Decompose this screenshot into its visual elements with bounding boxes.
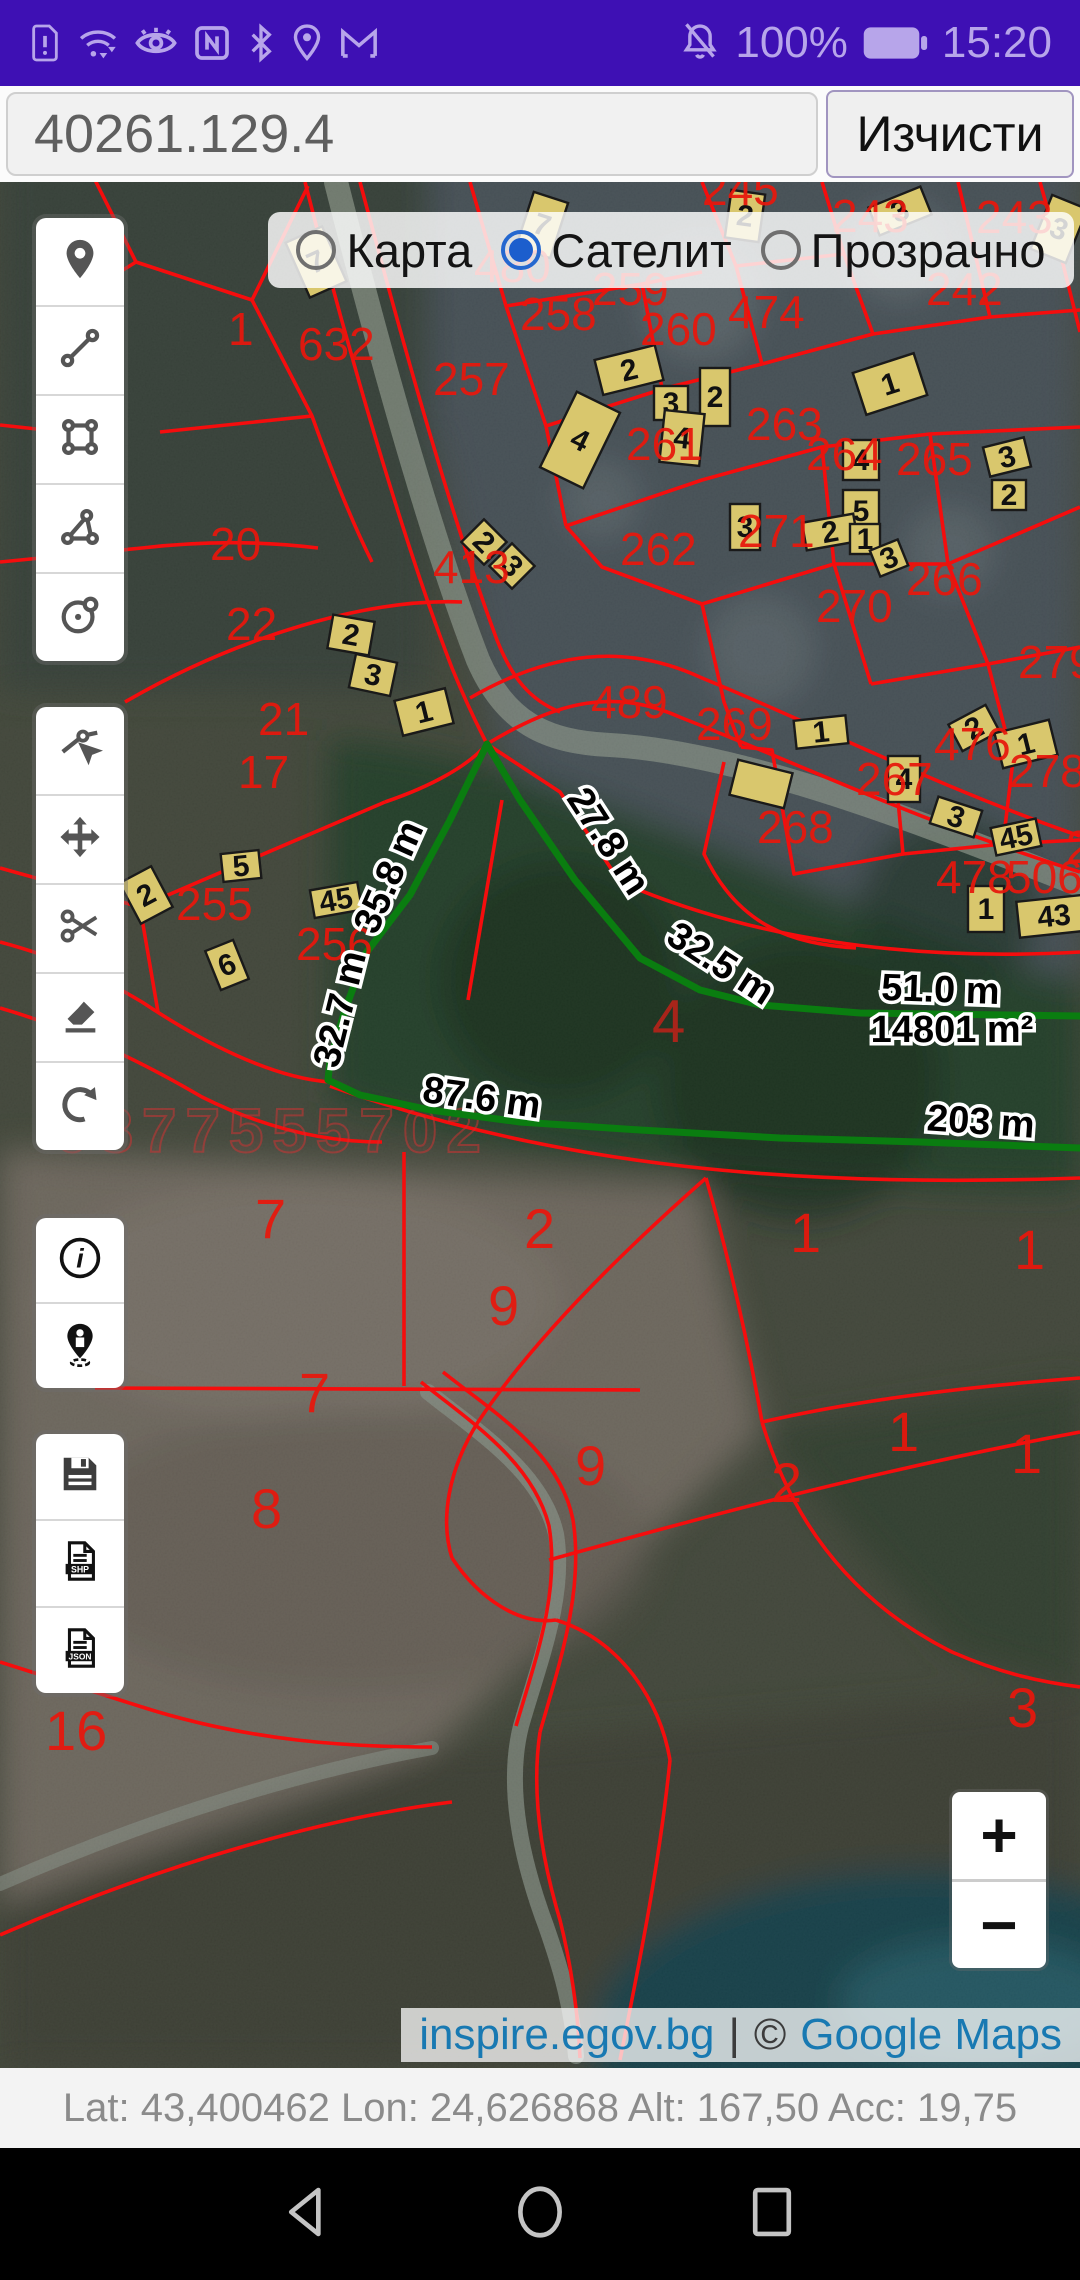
svg-text:267: 267: [856, 753, 933, 805]
svg-text:1: 1: [888, 1400, 919, 1463]
svg-text:2: 2: [1001, 479, 1018, 512]
svg-text:i: i: [76, 1243, 84, 1273]
zoom-in-button[interactable]: +: [952, 1792, 1046, 1882]
svg-text:258: 258: [520, 288, 597, 340]
svg-text:14801 m²: 14801 m²: [871, 1009, 1034, 1051]
svg-text:1: 1: [1014, 1218, 1045, 1281]
gps-status-bar: Lat: 43,400462 Lon: 24,626868 Alt: 167,5…: [0, 2068, 1080, 2148]
svg-text:264: 264: [806, 428, 883, 480]
svg-text:260: 260: [640, 303, 717, 355]
layer-option-satellite[interactable]: Сателит: [501, 223, 731, 278]
measure-rect-button[interactable]: [36, 396, 124, 485]
svg-text:7: 7: [299, 1361, 330, 1424]
svg-text:489: 489: [591, 676, 668, 728]
nfc-icon: [192, 23, 232, 63]
attribution-separator: |: [728, 2010, 739, 2060]
gmail-icon: [338, 23, 380, 63]
export-shp-button[interactable]: SHP: [36, 1521, 124, 1608]
export-json-button[interactable]: JSON: [36, 1608, 124, 1693]
svg-text:1: 1: [228, 303, 254, 355]
locate-person-button[interactable]: [36, 1304, 124, 1388]
svg-text:478: 478: [936, 851, 1013, 903]
svg-text:277: 277: [1066, 821, 1080, 873]
svg-text:257: 257: [433, 353, 510, 405]
svg-text:SHP: SHP: [71, 1564, 89, 1574]
location-icon: [290, 23, 324, 63]
json-file-icon: JSON: [57, 1625, 103, 1676]
google-maps-link[interactable]: Google Maps: [800, 2010, 1062, 2060]
svg-text:9: 9: [575, 1434, 606, 1497]
android-nav-bar: [0, 2148, 1080, 2280]
radio-map[interactable]: [296, 230, 336, 270]
measure-rect-icon: [57, 414, 103, 465]
info-button[interactable]: i: [36, 1218, 124, 1304]
svg-text:1: 1: [1011, 1422, 1042, 1485]
svg-text:261: 261: [626, 418, 703, 470]
copyright-symbol: ©: [754, 2010, 786, 2060]
measure-polygon-button[interactable]: [36, 485, 124, 574]
svg-text:22: 22: [226, 598, 277, 650]
back-icon[interactable]: [277, 2181, 339, 2248]
edit-vertex-button[interactable]: [36, 707, 124, 796]
svg-text:16: 16: [45, 1699, 107, 1762]
svg-text:1: 1: [811, 715, 831, 750]
map-canvas[interactable]: 237742324145332213323231545621434514321 …: [0, 0, 1080, 2280]
status-bar: 100% 15:20: [0, 0, 1080, 86]
recents-icon[interactable]: [741, 2181, 803, 2248]
svg-text:8: 8: [251, 1477, 282, 1540]
edit-vertex-icon: [57, 725, 103, 776]
layer-option-map[interactable]: Карта: [296, 223, 472, 278]
measure-polygon-icon: [57, 503, 103, 554]
move-button[interactable]: [36, 796, 124, 885]
layer-option-label: Карта: [346, 223, 472, 278]
home-icon[interactable]: [509, 2181, 571, 2248]
toolbar-export: SHP JSON: [36, 1434, 124, 1693]
svg-text:JSON: JSON: [69, 1651, 92, 1661]
layer-option-label: Прозрачно: [811, 223, 1046, 278]
svg-text:474: 474: [728, 286, 805, 338]
locate-person-icon: [57, 1321, 103, 1372]
save-button[interactable]: [36, 1434, 124, 1521]
battery-percent: 100%: [735, 18, 848, 68]
toolbar-draw: [36, 218, 124, 661]
svg-text:266: 266: [906, 553, 983, 605]
toolbar-info: i: [36, 1218, 124, 1388]
svg-text:4: 4: [652, 988, 685, 1055]
map-attribution: inspire.egov.bg | © Google Maps: [401, 2008, 1080, 2062]
marker-tool-button[interactable]: [36, 218, 124, 307]
parcel-search-input[interactable]: [6, 92, 818, 176]
move-icon: [57, 814, 103, 865]
svg-text:17: 17: [238, 746, 289, 798]
shp-file-icon: SHP: [57, 1538, 103, 1589]
svg-text:279: 279: [1018, 636, 1080, 688]
svg-text:2: 2: [707, 381, 724, 414]
svg-text:9: 9: [488, 1274, 519, 1337]
svg-text:632: 632: [298, 318, 375, 370]
svg-text:203 m: 203 m: [926, 1097, 1036, 1146]
layer-option-label: Сателит: [551, 223, 731, 278]
clear-button[interactable]: Изчисти: [826, 90, 1074, 178]
svg-text:21: 21: [258, 693, 309, 745]
cut-icon: [57, 903, 103, 954]
svg-text:278: 278: [1009, 745, 1080, 797]
bluetooth-icon: [246, 23, 276, 63]
svg-text:20: 20: [210, 518, 261, 570]
eraser-icon: [57, 992, 103, 1043]
layer-option-transparent[interactable]: Прозрачно: [761, 223, 1046, 278]
svg-text:3: 3: [1007, 1676, 1038, 1739]
wifi-icon: [76, 23, 120, 63]
svg-text:413: 413: [433, 541, 510, 593]
marker-icon: [57, 236, 103, 287]
eye-icon: [134, 23, 178, 63]
svg-text:51.0 m: 51.0 m: [881, 967, 1001, 1013]
search-row: Изчисти: [0, 86, 1080, 182]
info-icon: i: [57, 1235, 103, 1286]
save-icon: [57, 1451, 103, 1502]
zoom-control: + −: [952, 1792, 1046, 1968]
inspire-link[interactable]: inspire.egov.bg: [419, 2010, 714, 2060]
undo-icon: [57, 1081, 103, 1132]
battery-icon: [862, 25, 928, 61]
undo-button[interactable]: [36, 1063, 124, 1150]
cut-button[interactable]: [36, 885, 124, 974]
erase-button[interactable]: [36, 974, 124, 1063]
sim-alert-icon: [28, 23, 62, 63]
svg-text:476: 476: [934, 718, 1011, 770]
svg-text:262: 262: [620, 523, 697, 575]
radio-transparent[interactable]: [761, 230, 801, 270]
svg-text:2: 2: [771, 1451, 802, 1514]
bell-muted-icon: [679, 21, 721, 65]
gps-coordinates: Lat: 43,400462 Lon: 24,626868 Alt: 167,5…: [63, 2086, 1017, 2131]
measure-line-button[interactable]: [36, 307, 124, 396]
zoom-out-button[interactable]: −: [952, 1882, 1046, 1969]
measure-line-icon: [57, 325, 103, 376]
svg-text:265: 265: [896, 433, 973, 485]
svg-text:269: 269: [696, 698, 773, 750]
svg-text:7: 7: [255, 1187, 286, 1250]
layer-toggle: Карта Сателит Прозрачно: [268, 212, 1074, 288]
svg-text:271: 271: [738, 505, 815, 557]
toolbar-edit: [36, 707, 124, 1150]
svg-text:43: 43: [1036, 898, 1073, 934]
measure-circle-button[interactable]: [36, 574, 124, 661]
svg-text:2: 2: [524, 1197, 555, 1260]
radio-satellite[interactable]: [501, 230, 541, 270]
svg-text:1: 1: [790, 1201, 821, 1264]
svg-text:270: 270: [816, 580, 893, 632]
measure-circle-icon: [57, 592, 103, 643]
svg-text:255: 255: [176, 878, 253, 930]
svg-text:268: 268: [757, 801, 834, 853]
clock: 15:20: [942, 18, 1052, 68]
